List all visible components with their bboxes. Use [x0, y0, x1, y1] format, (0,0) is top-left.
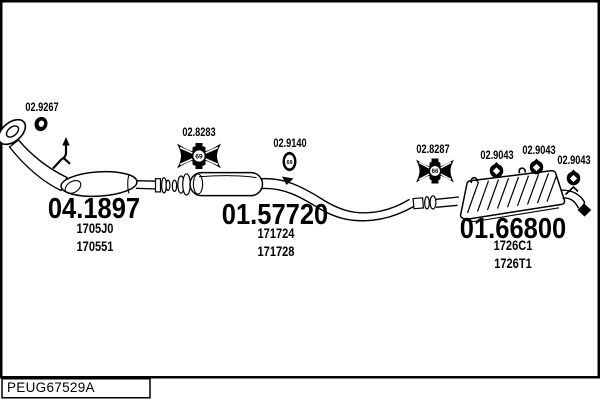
clamp-icon-rear: 66: [416, 159, 454, 184]
oe-ref-front-1: 1705J0: [46, 222, 144, 235]
label-rear-hanger-3: 02.9043: [526, 156, 600, 167]
label-front-gasket: 02.9267: [0, 103, 90, 114]
hanger-hook-arrow-icon: [53, 137, 70, 169]
part-number-front: 04.1897: [15, 195, 173, 224]
oe-ref-rear-1: 1726C1: [464, 239, 562, 252]
oe-ref-rear-2: 1726T1: [464, 257, 562, 270]
middle-silencer-drawing: [178, 173, 263, 196]
hanger-icon-3: [567, 170, 581, 186]
front-pipe-coupling-drawing: [136, 178, 177, 193]
label-mid-mount: 02.9140: [242, 139, 338, 150]
clamp-code-rear: 66: [432, 169, 439, 175]
exhaust-system-diagram: 69 69 66: [0, 0, 600, 400]
mount-code-mid: 69: [286, 160, 292, 166]
rear-pipe-coupling-drawing: [413, 196, 459, 209]
gasket-ring-icon: [33, 115, 50, 133]
diagram-ref: PEUG67529A: [7, 380, 95, 395]
label-mid-clamp: 02.8283: [151, 128, 247, 139]
rubber-mount-icon-mid: 69: [283, 152, 297, 171]
clamp-code-mid: 69: [195, 153, 203, 160]
front-pipe-drawing: [10, 140, 68, 191]
oe-ref-middle-1: 171724: [227, 227, 325, 240]
clamp-icon-mid: 69: [177, 143, 221, 169]
hanger-icon-1: [490, 162, 504, 178]
oe-ref-front-2: 170551: [45, 240, 143, 253]
oe-ref-middle-2: 171728: [227, 245, 325, 258]
